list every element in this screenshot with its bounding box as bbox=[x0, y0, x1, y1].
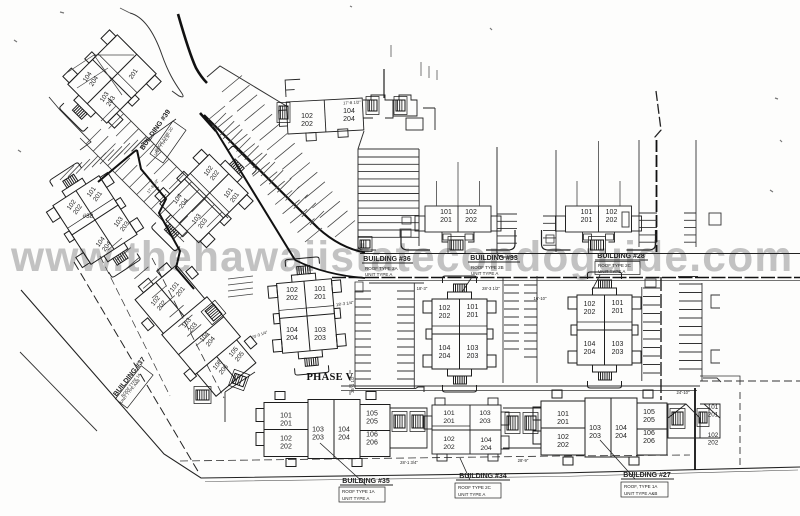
svg-text:UNIT TYPE A: UNIT TYPE A bbox=[365, 272, 392, 277]
svg-text:104204: 104204 bbox=[338, 427, 350, 442]
svg-text:101201: 101201 bbox=[443, 410, 455, 425]
svg-text:24'-10": 24'-10" bbox=[677, 390, 691, 395]
svg-text:ROOF, TYPE 1A: ROOF, TYPE 1A bbox=[624, 484, 657, 489]
svg-text:102202: 102202 bbox=[280, 436, 292, 451]
svg-text:ROOF TYPE 2C: ROOF TYPE 2C bbox=[458, 485, 492, 490]
svg-text:103203: 103203 bbox=[314, 327, 326, 342]
svg-text:102202: 102202 bbox=[584, 301, 596, 316]
svg-text:35'-1 1/2": 35'-1 1/2" bbox=[350, 375, 355, 393]
svg-text:ROOF TYPE 1A: ROOF TYPE 1A bbox=[342, 489, 375, 494]
svg-text:102202: 102202 bbox=[443, 436, 455, 451]
svg-text:105205: 105205 bbox=[366, 411, 378, 426]
svg-text:BUILDING #36: BUILDING #36 bbox=[363, 256, 411, 263]
svg-text:104204: 104204 bbox=[286, 327, 298, 342]
svg-text:UNIT TYPE A: UNIT TYPE A bbox=[471, 271, 498, 276]
svg-text:105205: 105205 bbox=[643, 409, 655, 424]
svg-text:101201: 101201 bbox=[581, 209, 593, 224]
svg-text:102202: 102202 bbox=[301, 113, 313, 128]
svg-text:104204: 104204 bbox=[480, 437, 492, 452]
svg-text:UNIT TYPE A: UNIT TYPE A bbox=[342, 496, 369, 501]
svg-text:102202: 102202 bbox=[708, 432, 719, 447]
svg-text:102202: 102202 bbox=[606, 209, 618, 224]
svg-text:17'-8 1/2": 17'-8 1/2" bbox=[343, 100, 361, 106]
svg-text:BUILDING #34: BUILDING #34 bbox=[459, 473, 507, 480]
svg-text:102202: 102202 bbox=[439, 305, 451, 320]
svg-text:28'-9": 28'-9" bbox=[518, 458, 529, 463]
svg-text:ROOF TYPE 2A: ROOF TYPE 2A bbox=[365, 266, 398, 271]
svg-text:102202: 102202 bbox=[465, 209, 477, 224]
svg-text:104204: 104204 bbox=[584, 341, 596, 356]
svg-text:16'-10": 16'-10" bbox=[534, 296, 548, 301]
svg-text:102202: 102202 bbox=[286, 287, 298, 302]
svg-text:ROOF TYPE 2C: ROOF TYPE 2C bbox=[598, 263, 632, 268]
svg-text:102202: 102202 bbox=[557, 434, 569, 449]
svg-text:28'-3 1/2": 28'-3 1/2" bbox=[482, 286, 500, 291]
svg-text:104204: 104204 bbox=[615, 425, 627, 440]
svg-text:101201: 101201 bbox=[467, 304, 479, 319]
svg-text:104204: 104204 bbox=[343, 108, 355, 123]
svg-text:101201: 101201 bbox=[440, 209, 452, 224]
svg-text:BUILDING #33: BUILDING #33 bbox=[470, 255, 518, 262]
svg-text:UNIT TYPE A&B: UNIT TYPE A&B bbox=[624, 491, 657, 496]
svg-text:BUILDING #35: BUILDING #35 bbox=[342, 478, 390, 485]
svg-text:ROOF TYPE 2B: ROOF TYPE 2B bbox=[471, 265, 504, 270]
svg-text:BUILDING #27: BUILDING #27 bbox=[623, 472, 671, 479]
svg-text:101201: 101201 bbox=[557, 411, 569, 426]
svg-text:103203: 103203 bbox=[312, 427, 324, 442]
svg-text:PHASE V: PHASE V bbox=[306, 372, 353, 383]
svg-text:UNIT TYPE A: UNIT TYPE A bbox=[458, 492, 485, 497]
svg-text:18'-3": 18'-3" bbox=[417, 286, 428, 291]
svg-text:BUILDING #28: BUILDING #28 bbox=[597, 253, 645, 260]
svg-text:106206: 106206 bbox=[366, 432, 378, 447]
svg-text:103203: 103203 bbox=[589, 425, 601, 440]
svg-text:101201: 101201 bbox=[280, 413, 292, 428]
svg-text:101201: 101201 bbox=[708, 404, 719, 419]
svg-text:103203: 103203 bbox=[467, 345, 479, 360]
svg-text:104204: 104204 bbox=[439, 345, 451, 360]
svg-text:101201: 101201 bbox=[612, 300, 624, 315]
svg-text:103203: 103203 bbox=[479, 410, 491, 425]
svg-text:101201: 101201 bbox=[314, 286, 326, 301]
svg-text:103203: 103203 bbox=[612, 341, 624, 356]
svg-text:106206: 106206 bbox=[643, 430, 655, 445]
svg-text:#38: #38 bbox=[83, 213, 94, 220]
svg-text:28'-1 3/4": 28'-1 3/4" bbox=[400, 460, 418, 465]
